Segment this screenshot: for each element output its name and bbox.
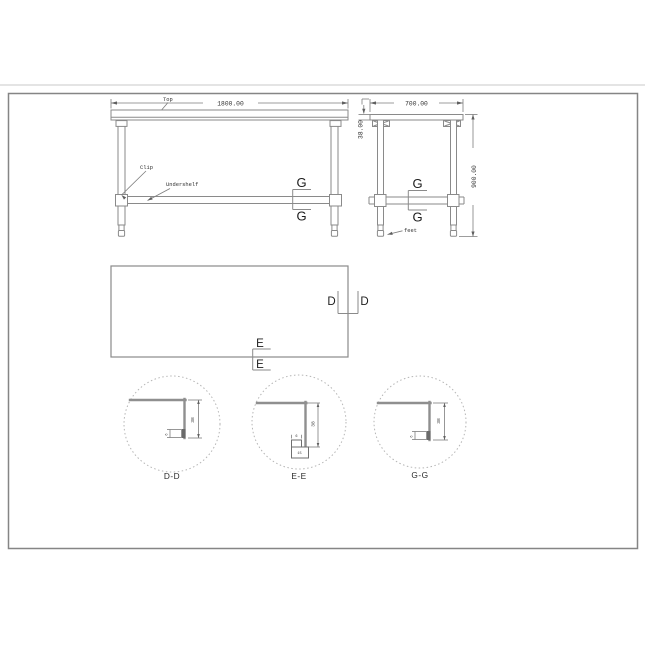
- detail-ee-label: E-E: [291, 471, 306, 481]
- dim-arrow: [342, 101, 348, 104]
- side-left-leg: [378, 120, 384, 225]
- front-right-leg: [331, 120, 338, 225]
- front-undershelf: [116, 195, 342, 207]
- side-section-g-marks: G G: [408, 176, 427, 225]
- section-letter-g: G: [412, 210, 422, 225]
- ee-height-dim-text: 38: [311, 421, 317, 427]
- front-right-clip: [330, 195, 342, 207]
- side-depth-dim-text: 700.00: [405, 101, 428, 108]
- dd-height-dimension: 38: [188, 400, 202, 438]
- detail-gg-circle: [374, 376, 466, 468]
- side-right-leg: [451, 120, 457, 225]
- side-undershelf: [369, 195, 464, 207]
- feet-label-group: feet: [387, 228, 417, 236]
- detail-dd-circle: [124, 376, 220, 472]
- side-view: 700.00 38.00: [358, 99, 478, 237]
- front-left-leg-mount: [116, 121, 127, 127]
- ee-hem-dim-text: 6: [295, 435, 297, 439]
- gg-hem: [426, 431, 430, 440]
- front-view: 1800.00 Top Clip: [111, 97, 348, 236]
- technical-drawing-canvas: 1800.00 Top Clip: [0, 0, 645, 645]
- dim-arrow: [111, 101, 117, 104]
- plan-view: D D E E: [111, 266, 369, 371]
- section-letter-e: E: [256, 338, 264, 350]
- ee-height-dimension: 38: [307, 403, 320, 447]
- detail-gg-label: G-G: [411, 470, 428, 480]
- front-left-leg: [118, 120, 125, 225]
- dd-hem-dimension: 6: [166, 430, 182, 438]
- side-thickness-dimension: 38.00: [358, 99, 371, 139]
- side-height-dimension: 900.00: [459, 115, 478, 237]
- undershelf-label-group: Undershelf: [147, 182, 199, 202]
- detail-dd-label: D-D: [164, 471, 180, 481]
- detail-dd: 38 6 D-D: [124, 376, 220, 481]
- side-thickness-dim-text: 38.00: [358, 120, 365, 139]
- front-tabletop: [111, 110, 348, 120]
- front-width-dimension: 1800.00: [111, 99, 348, 109]
- detail-ee: 38 6 15 E-E: [252, 375, 346, 481]
- gg-hem-dim-text: 6: [411, 435, 415, 437]
- section-letter-d: D: [360, 296, 368, 308]
- feet-leader-arrow: [387, 232, 393, 236]
- side-left-clip: [375, 195, 387, 207]
- dd-hem-dim-text: 6: [166, 433, 170, 435]
- undershelf-label: Undershelf: [166, 182, 198, 188]
- undershelf-leader-arrow: [147, 197, 153, 202]
- feet-label: feet: [404, 228, 417, 234]
- section-letter-d: D: [327, 296, 335, 308]
- plan-tabletop: [111, 266, 348, 357]
- section-letter-g: G: [296, 175, 306, 190]
- side-depth-dimension: 700.00: [370, 99, 463, 112]
- gg-height-dimension: 38: [433, 403, 448, 440]
- ee-return-dim-text: 15: [297, 452, 301, 456]
- front-left-clip: [116, 195, 128, 207]
- dd-hem: [181, 429, 185, 438]
- section-letter-e: E: [256, 359, 264, 371]
- front-width-dim-text: 1800.00: [217, 101, 244, 108]
- gg-hem-dimension: 6: [411, 432, 427, 440]
- side-tabletop: [370, 115, 463, 121]
- side-right-clip: [448, 195, 460, 207]
- side-height-dim-text: 900.00: [471, 165, 478, 188]
- top-label: Top: [163, 97, 173, 103]
- dd-height-dim-text: 38: [190, 417, 196, 423]
- front-feet: [118, 225, 337, 236]
- clip-label: Clip: [140, 165, 153, 171]
- gg-height-dim-text: 38: [436, 418, 442, 424]
- side-gussets: [373, 121, 461, 127]
- detail-gg: 38 6 G-G: [374, 376, 466, 480]
- section-letter-g: G: [296, 209, 306, 224]
- front-section-g-marks: G G: [293, 175, 311, 224]
- section-letter-g: G: [412, 176, 422, 191]
- front-right-leg-mount: [330, 121, 341, 127]
